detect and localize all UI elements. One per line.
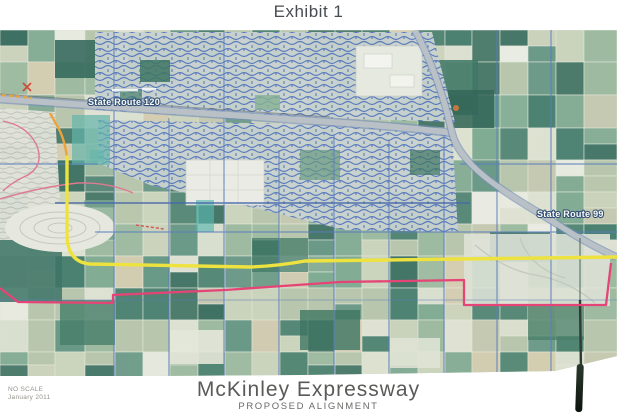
project-title: McKinley Expressway [0, 378, 617, 402]
project-subtitle: PROPOSED ALIGNMENT [0, 401, 617, 412]
page-title: Exhibit 1 [0, 2, 617, 22]
aerial-map-canvas: State Route 120 State Route 99 [0, 30, 617, 376]
aerial-map: State Route 120 State Route 99 [0, 30, 617, 376]
scan-tint [0, 30, 617, 376]
